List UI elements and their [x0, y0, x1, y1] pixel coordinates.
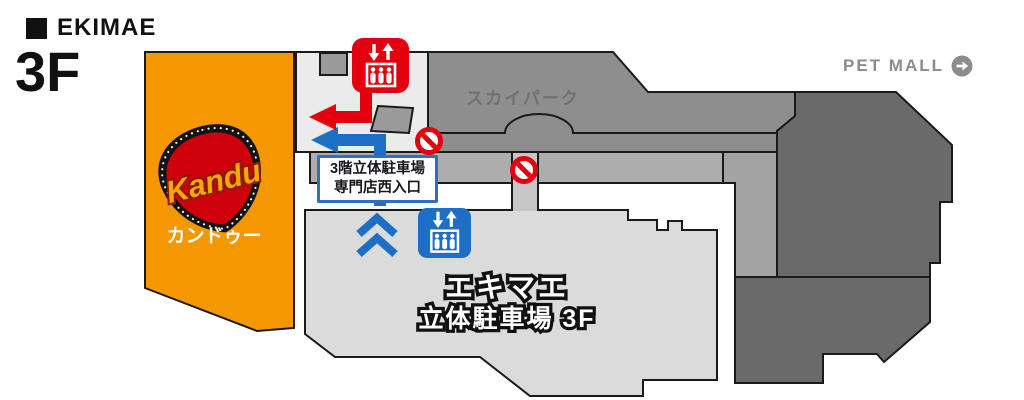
parking-label-line2: 立体駐車場 3F — [418, 304, 595, 333]
region-southeast-building — [735, 277, 930, 383]
region-parking — [305, 210, 717, 396]
no-entry-icon — [418, 130, 441, 153]
floor-label: 3F — [15, 44, 80, 100]
structure-box — [320, 53, 347, 75]
page-header: EKIMAE — [26, 14, 156, 42]
parking-entrance-sign: 3階立体駐車場 専門店西入口 — [317, 155, 438, 203]
region-corridor-strip — [723, 152, 777, 277]
elevator-icon-blue — [418, 208, 471, 258]
square-bullet-icon — [26, 18, 47, 39]
kandu-store-label: カンドゥー — [150, 221, 278, 248]
skypark-label: スカイパーク — [448, 84, 598, 109]
entrance-sign-line1: 3階立体駐車場 — [321, 160, 434, 179]
no-entry-icon — [513, 159, 536, 182]
region-petmall-building — [777, 92, 952, 277]
floor-map-page: Kandu エキマエ 立体駐車場 3F EKIMAE 3F PET MALL ス… — [0, 0, 1024, 400]
entrance-sign-line2: 専門店西入口 — [321, 179, 434, 198]
pet-mall-label: PET MALL — [843, 56, 944, 76]
page-title: EKIMAE — [57, 14, 156, 42]
pet-mall-link[interactable]: PET MALL — [843, 55, 973, 77]
elevator-icon-red — [352, 38, 409, 93]
arrow-right-circle-icon — [951, 55, 973, 77]
parking-label-line1: エキマエ — [445, 272, 569, 303]
structure-box — [371, 106, 413, 133]
